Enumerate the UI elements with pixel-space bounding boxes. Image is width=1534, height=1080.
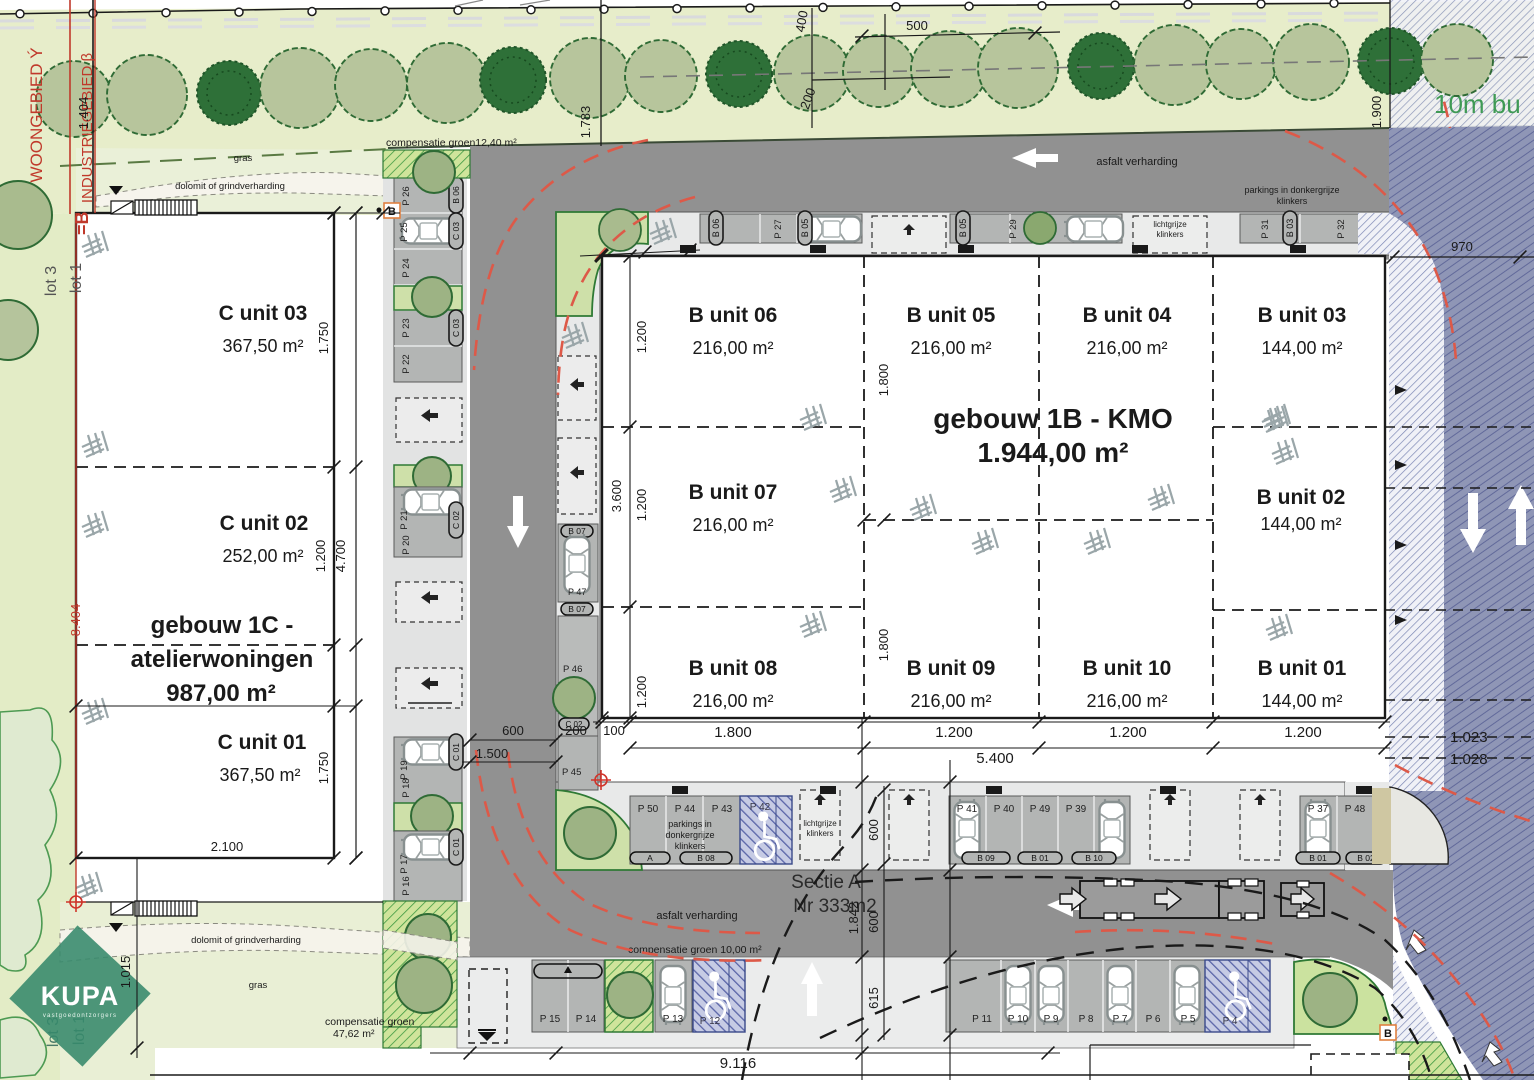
svg-text:gras: gras [249,980,268,991]
svg-text:parkings in donkergrijze: parkings in donkergrijze [1244,185,1339,195]
svg-text:P 31: P 31 [1260,219,1271,238]
svg-text:1.015: 1.015 [118,956,133,989]
svg-text:P 42: P 42 [750,802,771,813]
svg-text:615: 615 [866,987,881,1009]
svg-text:B unit 06: B unit 06 [689,304,778,327]
svg-text:B unit 02: B unit 02 [1257,486,1346,509]
svg-text:P 45: P 45 [562,767,581,778]
svg-text:B unit 07: B unit 07 [689,481,778,504]
svg-text:WOONGEBIED Ý: WOONGEBIED Ý [27,47,46,182]
svg-text:1.023: 1.023 [1450,729,1488,746]
svg-text:P 23: P 23 [401,318,412,337]
svg-text:asfalt verharding: asfalt verharding [656,910,737,922]
svg-text:1.200: 1.200 [634,676,649,709]
svg-text:dolomit of grindverharding: dolomit of grindverharding [191,935,301,946]
svg-text:A: A [647,853,653,863]
svg-text:1.750: 1.750 [316,752,331,785]
svg-text:3.600: 3.600 [609,480,624,513]
svg-text:B 06: B 06 [451,186,461,204]
svg-text:P 10: P 10 [1008,1014,1029,1025]
svg-text:367,50 m²: 367,50 m² [219,765,300,785]
svg-text:P 27: P 27 [773,219,784,238]
svg-text:klinkers: klinkers [1277,196,1308,206]
svg-text:P 24: P 24 [401,258,412,277]
svg-text:216,00 m²: 216,00 m² [1086,691,1167,711]
svg-text:P 14: P 14 [576,1014,597,1025]
svg-text:P 5: P 5 [1181,1014,1196,1025]
svg-text:C 03: C 03 [451,319,461,337]
svg-text:P 15: P 15 [540,1014,561,1025]
svg-text:4.700: 4.700 [333,540,348,573]
svg-text:P 32: P 32 [1336,219,1347,238]
svg-text:lichtgrijze: lichtgrijze [1153,220,1187,229]
svg-text:P 13: P 13 [663,1014,684,1025]
svg-text:B: B [1384,1028,1392,1040]
svg-text:asfalt verharding: asfalt verharding [1096,156,1177,168]
svg-text:P 19: P 19 [399,760,410,779]
svg-text:2.100: 2.100 [211,839,244,854]
svg-text:B unit 05: B unit 05 [907,304,996,327]
svg-text:Nr 333m2: Nr 333m2 [793,896,876,917]
svg-text:1.944,00 m²: 1.944,00 m² [978,437,1129,468]
svg-text:500: 500 [906,18,928,33]
svg-text:367,50 m²: 367,50 m² [222,336,303,356]
svg-text:klinkers: klinkers [1156,230,1183,239]
svg-text:1.200: 1.200 [634,321,649,354]
svg-text:P 18: P 18 [401,778,412,797]
svg-text:P 9: P 9 [1044,1014,1059,1025]
svg-text:B unit 09: B unit 09 [907,657,996,680]
svg-text:P 8: P 8 [1079,1014,1094,1025]
svg-text:C 01: C 01 [451,838,461,856]
svg-text:252,00 m²: 252,00 m² [222,546,303,566]
svg-text:P 37: P 37 [1308,804,1329,815]
svg-text:1.500: 1.500 [476,746,509,761]
svg-text:donkergrijze: donkergrijze [665,830,714,840]
svg-text:1.800: 1.800 [714,724,752,741]
svg-text:B unit 03: B unit 03 [1258,304,1347,327]
svg-text:lot 1: lot 1 [68,263,85,293]
svg-text:970: 970 [1451,239,1473,254]
svg-text:P 20: P 20 [401,535,412,554]
svg-text:P 4: P 4 [1223,1016,1238,1027]
svg-text:1.800: 1.800 [876,364,891,397]
svg-text:P 44: P 44 [675,804,696,815]
svg-text:parkings in: parkings in [668,819,712,829]
svg-text:P 40: P 40 [994,804,1015,815]
svg-text:C unit 03: C unit 03 [219,302,308,325]
svg-text:P 21: P 21 [399,510,410,529]
svg-text:600: 600 [866,911,881,933]
svg-text:5.400: 5.400 [976,750,1014,767]
svg-text:P 22: P 22 [401,354,412,373]
svg-text:dolomit of grindverharding: dolomit of grindverharding [175,181,285,192]
svg-text:P 26: P 26 [401,186,412,205]
svg-text:1.800: 1.800 [876,629,891,662]
svg-text:P 39: P 39 [1066,804,1087,815]
svg-text:B 06: B 06 [711,219,721,238]
svg-text:1.200: 1.200 [634,489,649,522]
svg-text:B unit 08: B unit 08 [689,657,778,680]
svg-text:B 10: B 10 [1085,853,1103,863]
svg-text:47,62 m²: 47,62 m² [333,1028,375,1040]
svg-text:1.900: 1.900 [1369,96,1384,129]
svg-text:P 43: P 43 [712,804,733,815]
svg-text:compensatie groen: compensatie groen [325,1016,414,1028]
svg-text:B 07: B 07 [568,604,586,614]
svg-text:KUPA: KUPA [41,981,120,1011]
svg-text:216,00 m²: 216,00 m² [692,691,773,711]
svg-text:216,00 m²: 216,00 m² [692,338,773,358]
svg-text:100: 100 [603,723,625,738]
svg-text:1.750: 1.750 [316,322,331,355]
svg-text:P 47: P 47 [568,587,586,597]
svg-text:P 48: P 48 [1345,804,1366,815]
svg-text:C 02: C 02 [451,511,461,529]
svg-text:9.116: 9.116 [720,1055,756,1072]
svg-text:vastgoedontzorgers: vastgoedontzorgers [43,1013,117,1019]
svg-text:B unit 04: B unit 04 [1083,304,1172,327]
svg-text:compensatie groen12,40 m²: compensatie groen12,40 m² [386,137,517,149]
svg-text:1.783: 1.783 [578,106,593,139]
svg-text:P 25: P 25 [399,222,410,241]
svg-text:gebouw 1C -: gebouw 1C - [151,612,294,639]
svg-text:P 29: P 29 [1008,219,1019,238]
svg-text:C unit 02: C unit 02 [220,512,309,535]
svg-text:144,00 m²: 144,00 m² [1260,514,1341,534]
svg-text:B 05: B 05 [958,219,968,238]
svg-text:1.200: 1.200 [935,724,973,741]
svg-text:B 01: B 01 [1031,853,1049,863]
svg-text:P 50: P 50 [638,804,659,815]
svg-text:C 01: C 01 [451,743,461,761]
svg-text:B 08: B 08 [697,853,715,863]
svg-text:216,00 m²: 216,00 m² [1086,338,1167,358]
svg-text:klinkers: klinkers [806,829,833,838]
svg-text:1.200: 1.200 [313,540,328,573]
svg-text:1.200: 1.200 [1284,724,1322,741]
svg-text:B 03: B 03 [1285,219,1295,238]
svg-text:Sectie A: Sectie A [791,872,861,893]
svg-text:klinkers: klinkers [675,841,706,851]
svg-text:216,00 m²: 216,00 m² [910,338,991,358]
svg-text:P 6: P 6 [1146,1014,1161,1025]
svg-text:1.028: 1.028 [1450,751,1488,768]
svg-text:8.404: 8.404 [68,604,83,637]
svg-text:B 01: B 01 [1309,853,1327,863]
svg-text:B 09: B 09 [977,853,995,863]
svg-text:1.842: 1.842 [846,902,861,935]
svg-text:atelierwoningen: atelierwoningen [131,646,314,673]
svg-text:gras: gras [234,153,253,164]
svg-text:P 49: P 49 [1030,804,1051,815]
svg-text:B unit 01: B unit 01 [1258,657,1347,680]
svg-text:P 12: P 12 [700,1016,721,1027]
svg-text:600: 600 [866,819,881,841]
svg-text:P 46: P 46 [563,664,582,675]
svg-text:600: 600 [502,723,524,738]
svg-text:C unit 01: C unit 01 [218,731,307,754]
svg-text:1.200: 1.200 [1109,724,1147,741]
svg-text:P 41: P 41 [957,804,978,815]
svg-text:gebouw 1B - KMO: gebouw 1B - KMO [933,403,1173,434]
svg-text:C 03: C 03 [451,222,461,240]
svg-text:lichtgrijze: lichtgrijze [803,819,837,828]
svg-text:987,00 m²: 987,00 m² [166,680,275,707]
svg-text:=B: =B [72,211,92,235]
svg-text:144,00 m²: 144,00 m² [1261,691,1342,711]
svg-text:144,00 m²: 144,00 m² [1261,338,1342,358]
svg-text:216,00 m²: 216,00 m² [910,691,991,711]
svg-text:P 16: P 16 [401,876,412,895]
svg-text:P 7: P 7 [1113,1014,1128,1025]
svg-text:1.404: 1.404 [76,97,91,130]
svg-text:B 05: B 05 [800,219,810,238]
svg-text:P 17: P 17 [399,854,410,873]
svg-text:B unit 10: B unit 10 [1083,657,1172,680]
svg-text:lot 3: lot 3 [43,266,60,296]
svg-text:P 11: P 11 [972,1014,992,1025]
svg-text:216,00 m²: 216,00 m² [692,515,773,535]
svg-text:200: 200 [565,723,587,738]
